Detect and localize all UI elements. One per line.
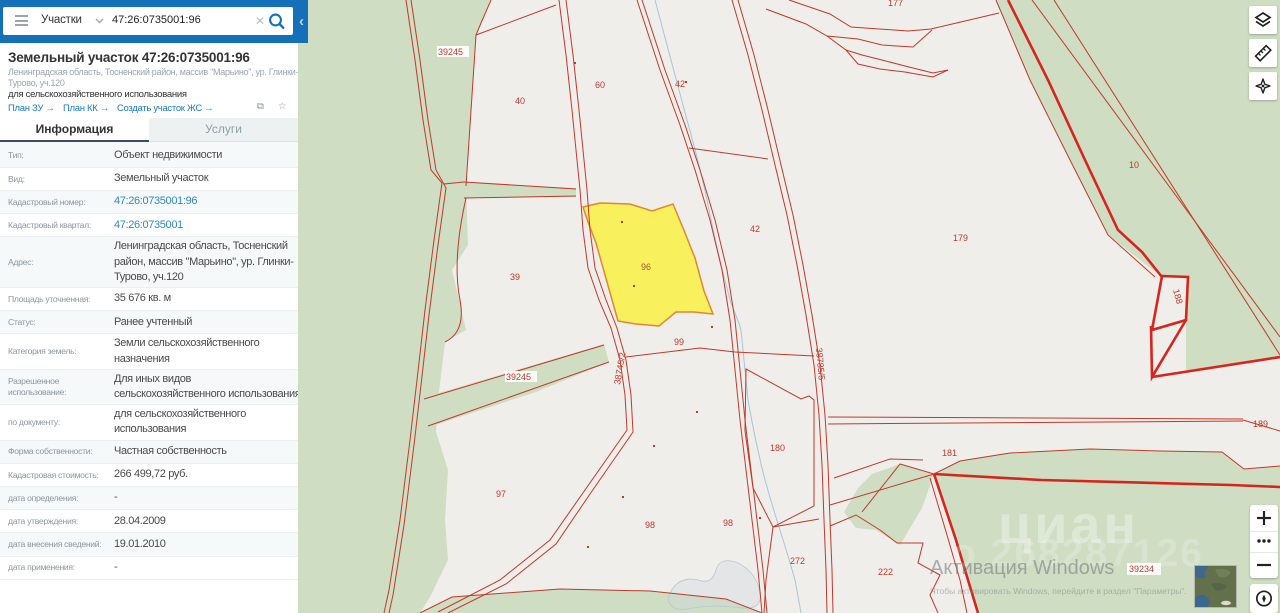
svg-text:96: 96	[641, 262, 651, 272]
svg-text:98: 98	[723, 518, 733, 528]
svg-text:99: 99	[674, 337, 684, 347]
svg-text:42: 42	[675, 79, 685, 89]
svg-text:10: 10	[1129, 160, 1139, 170]
svg-text:272: 272	[790, 556, 805, 566]
svg-text:189: 189	[1253, 419, 1268, 429]
svg-text:180: 180	[770, 443, 785, 453]
svg-text:39: 39	[510, 272, 520, 282]
svg-text:42: 42	[750, 224, 760, 234]
svg-text:40: 40	[515, 96, 525, 106]
svg-text:60: 60	[595, 80, 605, 90]
svg-text:181: 181	[942, 448, 957, 458]
svg-text:222: 222	[878, 567, 893, 577]
svg-text:98: 98	[645, 520, 655, 530]
svg-text:39245: 39245	[438, 47, 463, 57]
svg-text:179: 179	[953, 233, 968, 243]
svg-text:97: 97	[496, 489, 506, 499]
svg-text:177: 177	[888, 0, 903, 8]
svg-text:39245: 39245	[506, 372, 531, 382]
